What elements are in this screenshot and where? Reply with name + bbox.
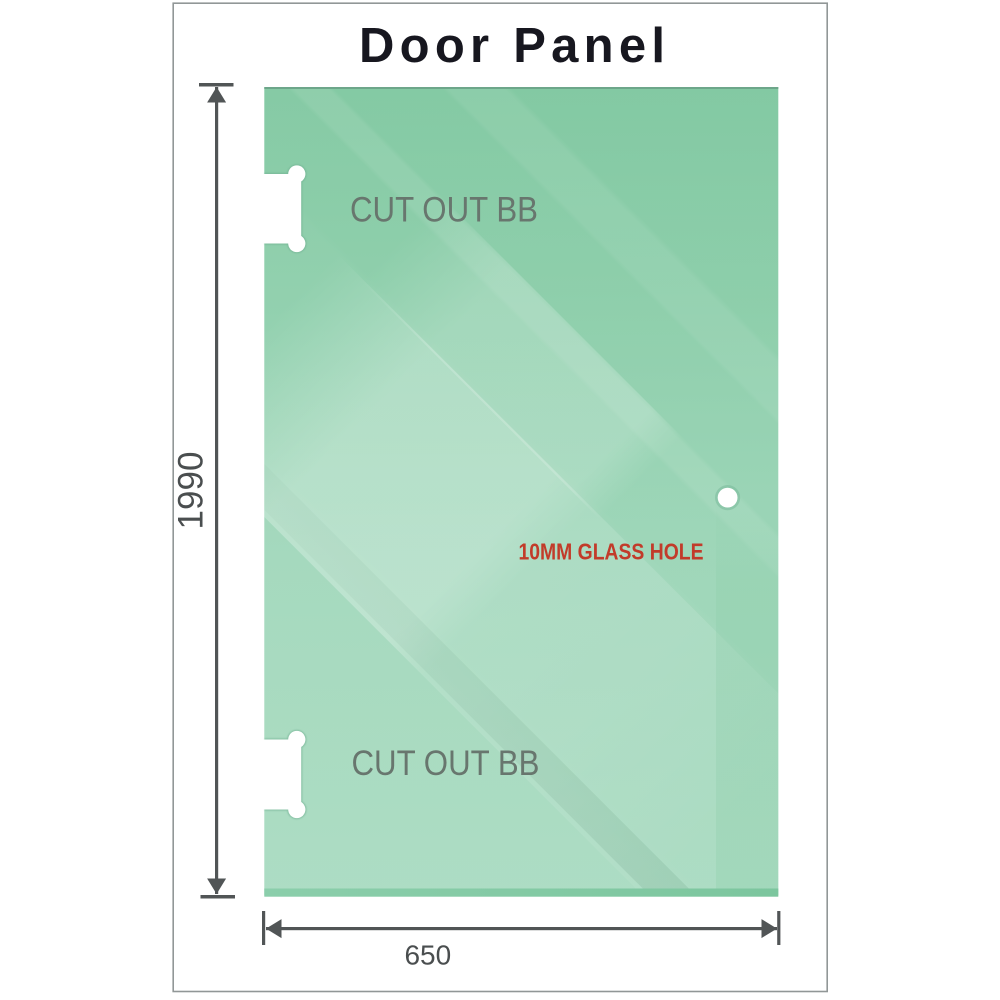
svg-text:CUT OUT BB: CUT OUT BB (352, 744, 540, 783)
svg-text:650: 650 (404, 940, 451, 971)
svg-text:1990: 1990 (172, 452, 211, 530)
svg-text:10MM GLASS HOLE: 10MM GLASS HOLE (519, 539, 704, 565)
svg-text:CUT OUT BB: CUT OUT BB (350, 191, 538, 230)
